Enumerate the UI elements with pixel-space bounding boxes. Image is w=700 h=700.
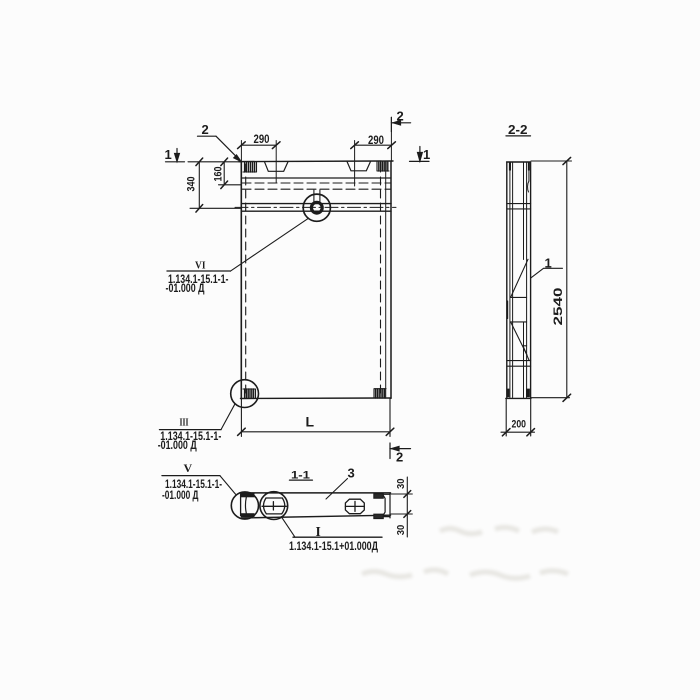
- svg-text:VI: VI: [195, 259, 206, 271]
- svg-text:1.134.1-15.1+01.000Д: 1.134.1-15.1+01.000Д: [289, 541, 378, 553]
- svg-text:30: 30: [395, 478, 407, 489]
- svg-text:290: 290: [254, 132, 270, 146]
- svg-text:1: 1: [165, 147, 172, 162]
- svg-text:2: 2: [397, 109, 404, 124]
- svg-text:2: 2: [202, 122, 209, 137]
- svg-text:340: 340: [186, 177, 198, 192]
- svg-text:1: 1: [423, 147, 430, 162]
- svg-text:2540: 2540: [551, 287, 565, 325]
- svg-text:1-1: 1-1: [291, 469, 310, 481]
- svg-text:1: 1: [545, 256, 552, 271]
- svg-text:-01.000 Д: -01.000 Д: [158, 440, 197, 452]
- svg-text:160: 160: [212, 167, 224, 182]
- svg-text:290: 290: [368, 133, 384, 147]
- svg-text:V: V: [184, 461, 193, 475]
- svg-text:-01.000 Д: -01.000 Д: [166, 283, 205, 295]
- svg-text:III: III: [180, 417, 189, 429]
- svg-text:200: 200: [512, 419, 527, 431]
- svg-text:L: L: [306, 414, 315, 430]
- svg-text:-01.000 Д: -01.000 Д: [162, 490, 199, 502]
- svg-text:I: I: [316, 524, 321, 539]
- svg-text:2-2: 2-2: [508, 122, 528, 137]
- svg-text:2: 2: [396, 450, 403, 465]
- svg-text:3: 3: [348, 466, 355, 481]
- svg-text:30: 30: [395, 525, 407, 536]
